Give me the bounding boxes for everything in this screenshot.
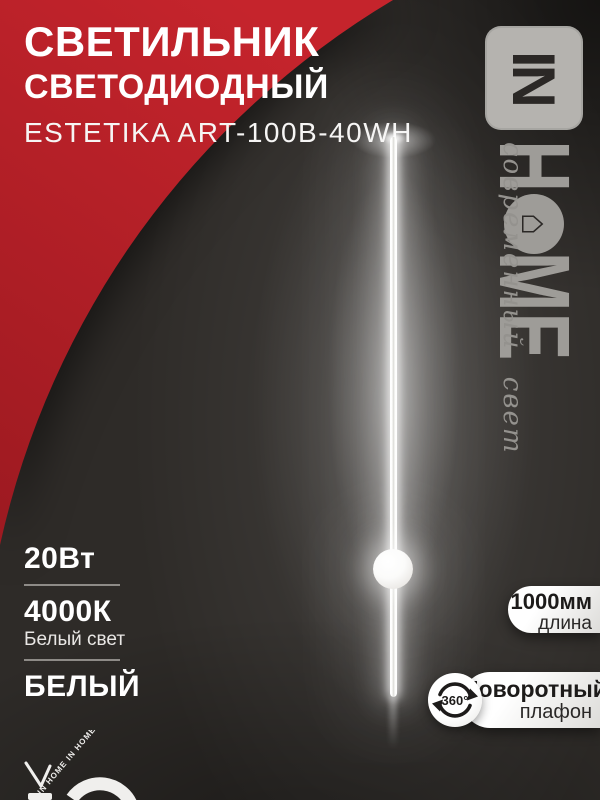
lamp-bottom-fade [389, 696, 397, 758]
product-subtitle: СВЕТОДИОДНЫЙ [24, 67, 413, 107]
length-label: длина [508, 614, 592, 633]
in-badge: IN [485, 26, 583, 130]
model-number: ESTETIKA ART-100B-40WH [24, 117, 413, 149]
product-title: СВЕТИЛЬНИК [24, 18, 413, 65]
brand-logo: IN H ⌂ M E современный свет [485, 26, 583, 376]
spec-divider [24, 659, 120, 661]
spec-list: 20Вт 4000К Белый свет БЕЛЫЙ [24, 543, 140, 702]
spec-temperature-note: Белый свет [24, 630, 140, 650]
product-packaging: СВЕТИЛЬНИК СВЕТОДИОДНЫЙ ESTETIKA ART-100… [0, 0, 600, 800]
watermark-logo: IN HOME IN HOME [0, 730, 150, 800]
rotation-badge: Поворотный плафон [462, 672, 600, 728]
length-badge: 1000мм длина [508, 586, 600, 633]
in-badge-text: IN [500, 51, 569, 105]
lamp-sphere [373, 549, 413, 589]
rotation-icon-text: 360° [428, 673, 482, 727]
spec-divider [24, 584, 120, 586]
rotation-icon-circle: 360° [428, 673, 482, 727]
title-block: СВЕТИЛЬНИК СВЕТОДИОДНЫЙ ESTETIKA ART-100… [24, 18, 413, 149]
spec-color: БЕЛЫЙ [24, 671, 140, 703]
lamp-light-bar [390, 137, 397, 697]
spec-temperature: 4000К [24, 596, 140, 628]
length-value: 1000мм [508, 589, 592, 614]
brand-tagline: современный свет [497, 142, 527, 392]
spec-power: 20Вт [24, 543, 140, 575]
